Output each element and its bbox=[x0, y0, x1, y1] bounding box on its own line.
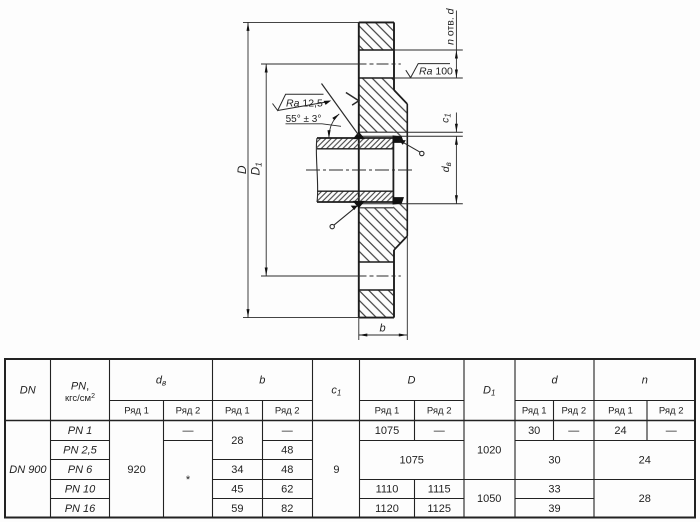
svg-text:—: — bbox=[282, 425, 293, 437]
svg-text:28: 28 bbox=[231, 435, 243, 447]
svg-text:30: 30 bbox=[528, 425, 540, 437]
svg-text:кгс/см2: кгс/см2 bbox=[65, 393, 95, 404]
svg-text:Ряд 2: Ряд 2 bbox=[176, 406, 201, 417]
svg-text:n отв. d: n отв. d bbox=[444, 7, 456, 45]
svg-text:45: 45 bbox=[231, 484, 243, 496]
svg-text:Ra 12,5: Ra 12,5 bbox=[286, 98, 323, 110]
svg-text:Ряд 1: Ряд 1 bbox=[124, 406, 149, 417]
svg-text:48: 48 bbox=[281, 464, 293, 476]
svg-text:—: — bbox=[666, 425, 677, 437]
svg-text:Ряд 2: Ряд 2 bbox=[561, 406, 586, 417]
svg-text:Ряд 1: Ряд 1 bbox=[225, 406, 250, 417]
svg-text:1020: 1020 bbox=[477, 445, 501, 457]
svg-text:PN 2,5: PN 2,5 bbox=[63, 445, 98, 457]
svg-text:82: 82 bbox=[281, 503, 293, 515]
svg-text:dв: dв bbox=[156, 374, 166, 387]
svg-text:DN: DN bbox=[20, 385, 36, 397]
svg-text:d: d bbox=[551, 374, 558, 386]
svg-text:28: 28 bbox=[639, 493, 651, 505]
svg-text:Ряд 2: Ряд 2 bbox=[659, 406, 684, 417]
svg-text:24: 24 bbox=[639, 454, 651, 466]
svg-text:1050: 1050 bbox=[477, 493, 501, 505]
svg-text:920: 920 bbox=[127, 464, 145, 476]
svg-text:30: 30 bbox=[548, 454, 560, 466]
svg-text:Ряд 1: Ряд 1 bbox=[522, 406, 547, 417]
svg-text:Ra 100: Ra 100 bbox=[419, 65, 453, 77]
svg-text:59: 59 bbox=[231, 503, 243, 515]
svg-text:1115: 1115 bbox=[428, 484, 451, 496]
svg-text:55° ± 3°: 55° ± 3° bbox=[286, 114, 322, 125]
svg-text:dв: dв bbox=[440, 162, 453, 172]
svg-text:—: — bbox=[183, 425, 194, 437]
svg-text:PN 6: PN 6 bbox=[68, 464, 93, 476]
svg-text:DN 900: DN 900 bbox=[9, 464, 47, 476]
svg-text:*: * bbox=[186, 474, 191, 486]
svg-text:1075: 1075 bbox=[399, 454, 423, 466]
svg-text:n: n bbox=[642, 374, 648, 386]
svg-text:PN 1: PN 1 bbox=[68, 425, 92, 437]
svg-text:39: 39 bbox=[548, 503, 560, 515]
svg-text:—: — bbox=[434, 425, 445, 437]
svg-text:62: 62 bbox=[281, 484, 293, 496]
svg-text:24: 24 bbox=[614, 425, 626, 437]
svg-text:33: 33 bbox=[548, 484, 560, 496]
svg-text:PN,: PN, bbox=[71, 381, 89, 393]
svg-text:—: — bbox=[568, 425, 579, 437]
svg-text:48: 48 bbox=[281, 445, 293, 457]
svg-text:PN 16: PN 16 bbox=[65, 503, 96, 515]
svg-text:c1: c1 bbox=[440, 113, 453, 123]
svg-text:1075: 1075 bbox=[375, 425, 399, 437]
svg-text:D: D bbox=[235, 165, 249, 174]
svg-text:D1: D1 bbox=[248, 162, 263, 176]
svg-text:D1: D1 bbox=[483, 385, 495, 398]
svg-text:1110: 1110 bbox=[376, 484, 399, 496]
svg-text:c1: c1 bbox=[331, 385, 341, 398]
svg-text:Ряд 2: Ряд 2 bbox=[427, 406, 452, 417]
svg-text:Ряд 2: Ряд 2 bbox=[275, 406, 300, 417]
svg-text:1120: 1120 bbox=[375, 503, 399, 515]
svg-text:PN 10: PN 10 bbox=[65, 484, 96, 496]
svg-text:b: b bbox=[379, 323, 385, 335]
svg-text:9: 9 bbox=[333, 464, 339, 476]
svg-text:34: 34 bbox=[231, 464, 243, 476]
svg-text:Ряд 1: Ряд 1 bbox=[375, 406, 400, 417]
svg-text:Ряд 1: Ряд 1 bbox=[608, 406, 633, 417]
svg-text:D: D bbox=[408, 374, 416, 386]
svg-text:1125: 1125 bbox=[427, 503, 451, 515]
svg-text:b: b bbox=[259, 374, 265, 386]
